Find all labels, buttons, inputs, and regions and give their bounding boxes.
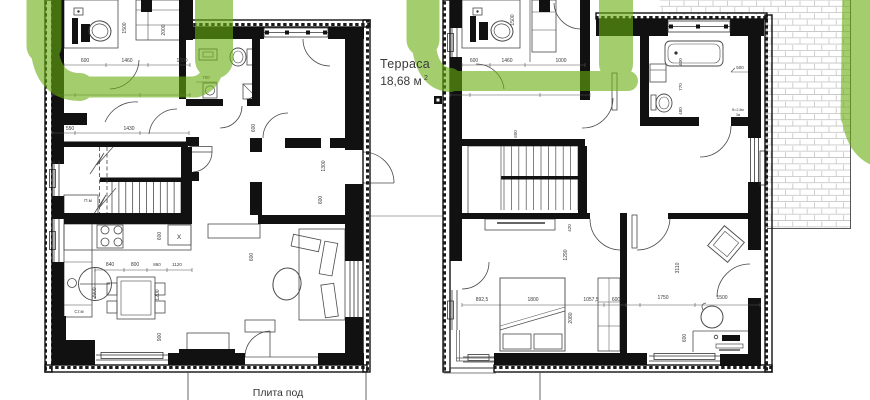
svg-text:1500: 1500 <box>716 295 727 301</box>
svg-text:550: 550 <box>66 126 75 132</box>
svg-text:600: 600 <box>251 124 257 133</box>
svg-text:840: 840 <box>106 262 115 268</box>
svg-text:2000: 2000 <box>161 24 167 35</box>
svg-text:860: 860 <box>153 262 161 267</box>
svg-text:500: 500 <box>736 65 744 70</box>
svg-text:1460: 1460 <box>501 58 512 64</box>
svg-text:480: 480 <box>678 107 683 115</box>
svg-text:600: 600 <box>682 334 688 343</box>
svg-text:Терраса: Терраса <box>380 57 430 71</box>
svg-text:1800: 1800 <box>527 297 538 303</box>
svg-text:2900: 2900 <box>92 287 98 298</box>
svg-text:1430: 1430 <box>123 126 134 132</box>
svg-text:1290: 1290 <box>563 249 569 260</box>
svg-text:900: 900 <box>157 333 163 342</box>
svg-text:3м: 3м <box>736 113 741 117</box>
svg-text:600: 600 <box>470 58 479 64</box>
svg-text:1500: 1500 <box>122 22 128 33</box>
svg-text:1200: 1200 <box>155 289 161 300</box>
svg-text:1500: 1500 <box>510 14 516 25</box>
svg-text:600: 600 <box>612 297 621 303</box>
svg-text:600: 600 <box>318 196 324 205</box>
svg-text:1000: 1000 <box>176 58 187 64</box>
svg-text:X: X <box>177 234 182 241</box>
svg-text:В=2.8м: В=2.8м <box>732 108 744 112</box>
svg-text:1460: 1460 <box>121 58 132 64</box>
svg-text:420: 420 <box>567 224 572 232</box>
svg-text:1000: 1000 <box>555 58 566 64</box>
svg-text:2080: 2080 <box>568 312 574 323</box>
svg-text:2: 2 <box>424 75 428 82</box>
svg-text:Ст.м: Ст.м <box>74 309 83 314</box>
svg-text:600: 600 <box>81 58 90 64</box>
svg-text:892,5: 892,5 <box>476 297 489 303</box>
svg-text:800: 800 <box>131 262 140 268</box>
svg-text:1750: 1750 <box>657 295 668 301</box>
svg-text:600: 600 <box>157 232 163 241</box>
svg-text:600: 600 <box>249 253 255 262</box>
svg-text:18,68 м: 18,68 м <box>380 74 422 88</box>
svg-text:600: 600 <box>513 130 518 138</box>
svg-text:1300: 1300 <box>321 160 327 171</box>
svg-text:400: 400 <box>678 58 683 66</box>
svg-text:Плита под: Плита под <box>253 387 303 399</box>
svg-text:1120: 1120 <box>172 262 182 267</box>
svg-text:1057,5: 1057,5 <box>583 297 599 303</box>
svg-text:П.м: П.м <box>84 198 92 203</box>
svg-text:3110: 3110 <box>675 262 681 273</box>
svg-text:770: 770 <box>678 83 683 91</box>
